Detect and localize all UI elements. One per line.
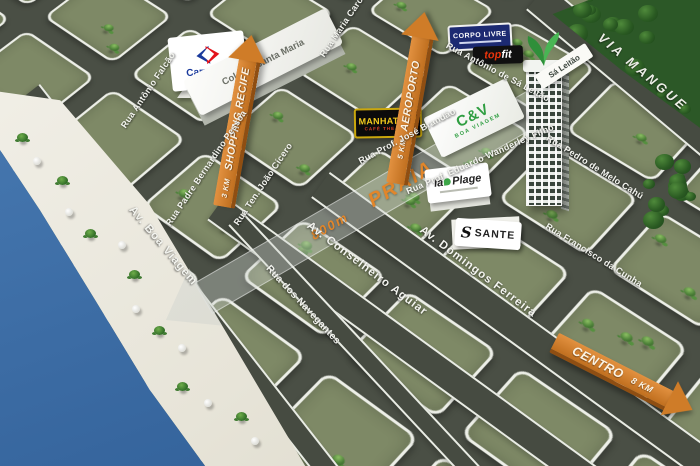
tree-icon — [634, 132, 649, 143]
map-canvas: 800m PRAIA Carrefour Colégio Santa Maria… — [0, 0, 700, 466]
forest-tree-icon — [638, 5, 658, 22]
shopping-distance: 3 KM — [219, 177, 231, 198]
tree-icon — [639, 335, 655, 349]
topfit-label-fit: fit — [501, 49, 512, 61]
subtext-bar — [459, 39, 501, 43]
park-trees — [640, 145, 698, 240]
tree-icon — [270, 110, 285, 121]
corpo-livre-label: CORPO LIVRE — [453, 30, 507, 40]
forest-tree-icon — [643, 179, 656, 190]
forest-tree-icon — [655, 154, 674, 170]
forest-tree-icon — [648, 197, 666, 212]
tree-icon — [102, 23, 116, 33]
tree-icon — [681, 285, 697, 298]
sante-sign: S SANTE — [454, 218, 522, 251]
tree-icon — [297, 163, 312, 175]
tree-icon — [580, 317, 596, 330]
forest-tree-icon — [643, 211, 664, 229]
sante-logo-initial: S — [460, 223, 472, 242]
tree-icon — [618, 330, 634, 344]
carrefour-logo-icon — [195, 44, 220, 64]
tree-icon — [544, 209, 559, 221]
sante-label: SANTE — [474, 227, 515, 242]
tree-icon — [345, 61, 359, 71]
forest-tree-icon — [639, 31, 655, 45]
forest-tree-icon — [603, 18, 618, 31]
tree-icon — [107, 42, 121, 52]
forest-tree-icon — [674, 159, 692, 174]
